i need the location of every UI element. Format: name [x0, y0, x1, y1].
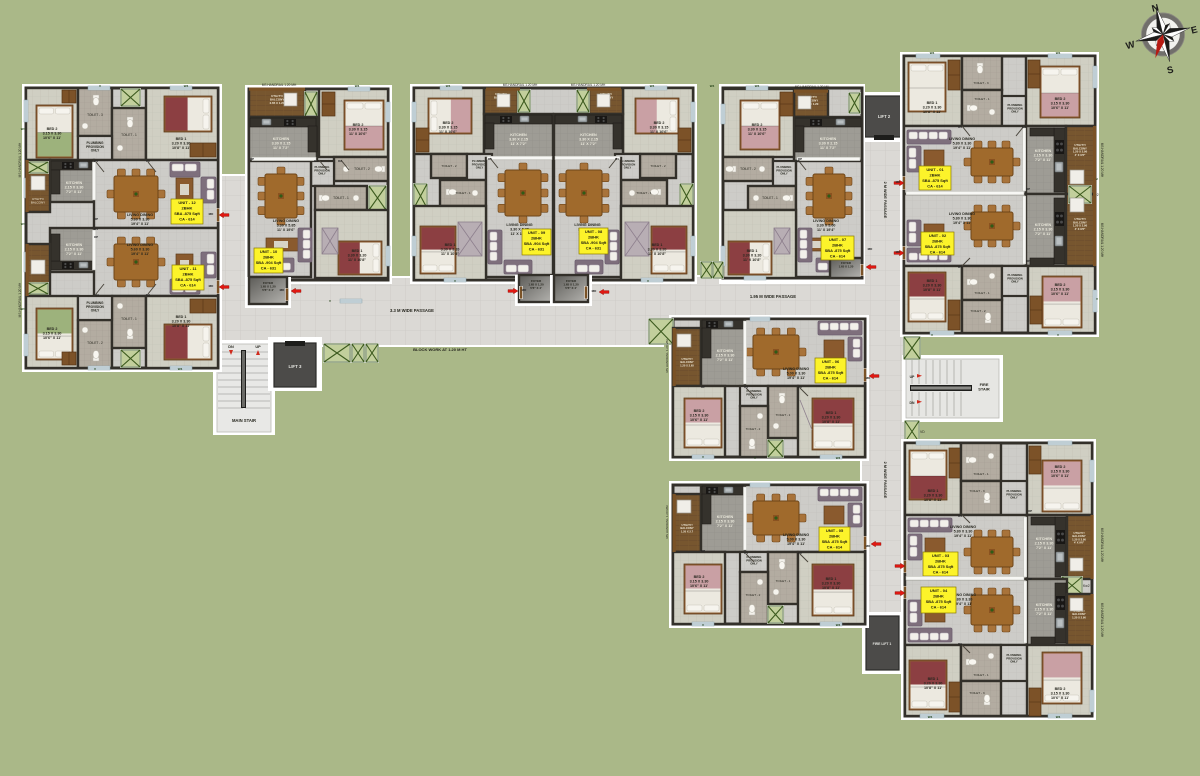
svg-text:2BHK: 2BHK: [935, 559, 946, 564]
svg-text:KITCHEN: KITCHEN: [717, 515, 734, 519]
svg-text:LIVING DINING: LIVING DINING: [949, 212, 975, 216]
svg-text:19'4" X 11': 19'4" X 11': [787, 376, 805, 380]
svg-text:Kw2: Kw2: [1083, 584, 1090, 588]
svg-text:OP: OP: [701, 385, 705, 389]
svg-text:5.80 X 3.30: 5.80 X 3.30: [954, 529, 973, 533]
svg-text:V: V: [94, 367, 96, 371]
svg-text:SBA -875 Sqft: SBA -875 Sqft: [818, 370, 844, 375]
svg-text:D1: D1: [958, 265, 962, 269]
svg-text:3.15 X 3.30: 3.15 X 3.30: [690, 413, 709, 417]
svg-text:MS HANDRAIL 1.20 MH: MS HANDRAIL 1.20 MH: [18, 282, 22, 317]
svg-text:V: V: [754, 456, 756, 460]
svg-text:2.65 X 1.20: 2.65 X 1.20: [270, 101, 285, 105]
svg-text:BED 1: BED 1: [927, 279, 938, 283]
svg-text:UNIT - 03: UNIT - 03: [932, 553, 950, 558]
svg-text:UNIT - 08: UNIT - 08: [585, 229, 603, 234]
svg-text:ONLY: ONLY: [624, 166, 632, 170]
svg-text:19'4" X 11': 19'4" X 11': [954, 602, 972, 606]
svg-text:10'6" X 11': 10'6" X 11': [1051, 474, 1069, 478]
svg-text:3.15 X 3.30: 3.15 X 3.30: [1051, 691, 1070, 695]
svg-text:BED 2: BED 2: [353, 123, 364, 127]
svg-text:CA - 614: CA - 614: [827, 545, 843, 550]
svg-text:3.30 X 3.15: 3.30 X 3.15: [748, 127, 767, 131]
svg-text:BED 1: BED 1: [826, 577, 837, 581]
svg-text:TOILET - 1: TOILET - 1: [333, 196, 349, 200]
svg-text:LIVING DINING: LIVING DINING: [574, 223, 600, 227]
svg-text:KITCHEN: KITCHEN: [1036, 603, 1053, 607]
svg-text:7'2" X 11': 7'2" X 11': [66, 252, 82, 256]
svg-text:4' X 9'6": 4' X 9'6": [1075, 227, 1086, 231]
svg-text:V: V: [329, 299, 331, 303]
svg-text:ONLY: ONLY: [91, 309, 100, 313]
svg-text:11' X 10'8": 11' X 10'8": [348, 258, 366, 262]
svg-text:TOILET - 1: TOILET - 1: [121, 317, 137, 321]
svg-text:D2: D2: [798, 385, 802, 389]
svg-text:CA - 614: CA - 614: [933, 570, 949, 575]
svg-text:11' X 10'6": 11' X 10'6": [748, 132, 766, 136]
svg-text:D1: D1: [744, 385, 748, 389]
svg-text:3.20 X 3.30: 3.20 X 3.30: [923, 283, 942, 287]
svg-text:UP: UP: [255, 345, 261, 349]
svg-text:BLOCK WORK AT 1.20 M HT: BLOCK WORK AT 1.20 M HT: [413, 347, 467, 352]
svg-text:W4: W4: [928, 715, 933, 719]
svg-text:V: V: [931, 333, 933, 337]
svg-text:3.30 X 3.15: 3.30 X 3.15: [439, 125, 458, 129]
svg-text:3.15 X 3.30: 3.15 X 3.30: [1051, 287, 1070, 291]
svg-text:TOILET - 3: TOILET - 3: [969, 691, 984, 695]
svg-text:5.80 X 3.30: 5.80 X 3.30: [953, 216, 972, 220]
svg-text:3.15 X 3.30: 3.15 X 3.30: [690, 579, 709, 583]
svg-text:10'8" X 11': 10'8" X 11': [924, 498, 942, 502]
svg-text:2BHK: 2BHK: [825, 365, 836, 370]
svg-text:BALCONY: BALCONY: [31, 201, 45, 205]
svg-text:MD: MD: [209, 284, 214, 288]
svg-text:3.30 X 5.85: 3.30 X 5.85: [277, 223, 296, 227]
svg-text:BED 2: BED 2: [443, 121, 454, 125]
svg-text:D1: D1: [314, 159, 318, 163]
svg-text:BED 2: BED 2: [694, 575, 705, 579]
svg-text:W4: W4: [930, 51, 935, 55]
svg-text:11' X 7'2": 11' X 7'2": [580, 142, 596, 146]
svg-text:5.60 X 3.30: 5.60 X 3.30: [131, 217, 150, 221]
svg-text:MD: MD: [896, 180, 901, 184]
svg-text:D1: D1: [94, 159, 98, 163]
svg-text:ONLY: ONLY: [780, 172, 788, 176]
svg-text:3.30 X 3.20: 3.30 X 3.20: [348, 253, 367, 257]
svg-text:3.30 X 3.20: 3.30 X 3.20: [743, 253, 762, 257]
svg-text:D1: D1: [615, 157, 619, 161]
svg-text:SBA -904 Sqft: SBA -904 Sqft: [524, 241, 550, 246]
svg-text:10'8" X 11': 10'8" X 11': [172, 146, 190, 150]
svg-text:STAIR: STAIR: [978, 387, 990, 392]
svg-text:7'2" X 11': 7'2" X 11': [1036, 612, 1052, 616]
svg-text:D2: D2: [798, 551, 802, 555]
svg-text:CA - 614: CA - 614: [823, 376, 839, 381]
svg-text:BED 1: BED 1: [928, 489, 939, 493]
svg-text:TOILET - 1: TOILET - 1: [974, 291, 989, 295]
svg-text:MS HANDRAIL 1.20 MH: MS HANDRAIL 1.20 MH: [1100, 528, 1104, 563]
svg-text:TOILET - 1: TOILET - 1: [762, 196, 778, 200]
svg-text:D1: D1: [95, 293, 99, 297]
svg-text:SBA -875 Sqft: SBA -875 Sqft: [822, 539, 848, 544]
svg-text:BED 1: BED 1: [747, 249, 758, 253]
svg-text:V: V: [1096, 297, 1098, 301]
svg-text:2BHK: 2BHK: [832, 243, 843, 248]
svg-text:7'2" X 11': 7'2" X 11': [717, 358, 733, 362]
svg-text:LIVING DINING: LIVING DINING: [783, 533, 809, 537]
svg-text:19'4" X 11': 19'4" X 11': [787, 542, 805, 546]
svg-text:MS HANDRAIL 1.20 MM: MS HANDRAIL 1.20 MM: [665, 339, 669, 372]
svg-text:UNIT - 10: UNIT - 10: [260, 249, 278, 254]
svg-text:MD: MD: [280, 288, 285, 292]
svg-text:1.20 X 2.7: 1.20 X 2.7: [681, 529, 694, 533]
svg-text:19'4" X 11': 19'4" X 11': [131, 222, 149, 226]
svg-text:W4: W4: [446, 84, 451, 88]
svg-text:10'8" X 11': 10'8" X 11': [172, 324, 190, 328]
svg-text:SBA -875 Sqft: SBA -875 Sqft: [825, 248, 851, 253]
svg-text:D1: D1: [958, 514, 962, 518]
svg-text:CA - 631: CA - 631: [261, 266, 277, 271]
svg-text:TOILET - 2: TOILET - 2: [746, 593, 761, 597]
svg-text:V: V: [1057, 333, 1059, 337]
svg-text:D2: D2: [338, 159, 342, 163]
svg-text:2BHK: 2BHK: [588, 235, 599, 240]
svg-text:3.30 X 3.15: 3.30 X 3.15: [650, 125, 669, 129]
svg-text:10'6" X 11': 10'6" X 11': [43, 336, 61, 340]
svg-text:2BHK: 2BHK: [263, 255, 274, 260]
svg-text:3.30 X 3.20: 3.30 X 3.20: [648, 247, 667, 251]
svg-text:2.15 X 3.30: 2.15 X 3.30: [1035, 541, 1054, 545]
svg-text:7'2" X 11': 7'2" X 11': [1035, 158, 1051, 162]
svg-text:KITCHEN: KITCHEN: [820, 137, 837, 141]
svg-text:TOILET - 3: TOILET - 3: [87, 113, 103, 117]
svg-text:11' X 19'6": 11' X 19'6": [277, 228, 295, 232]
svg-text:OP: OP: [798, 157, 802, 161]
svg-text:19'4" X 11': 19'4" X 11': [953, 221, 971, 225]
svg-text:2BHK: 2BHK: [182, 206, 193, 211]
svg-text:KITCHEN: KITCHEN: [273, 137, 290, 141]
svg-text:LIVING DINING: LIVING DINING: [813, 219, 839, 223]
svg-text:2.15 X 3.30: 2.15 X 3.30: [716, 519, 735, 523]
svg-text:10'8" X 11': 10'8" X 11': [822, 586, 840, 590]
svg-text:BED 2: BED 2: [1055, 97, 1066, 101]
svg-text:3.20 X 3.30: 3.20 X 3.30: [924, 493, 943, 497]
svg-text:TOILET - 2: TOILET - 2: [970, 309, 985, 313]
svg-text:3.20 X 3.30: 3.20 X 3.30: [822, 415, 841, 419]
svg-text:2.15 X 3.30: 2.15 X 3.30: [1035, 607, 1054, 611]
svg-text:CA - 614: CA - 614: [931, 605, 947, 610]
svg-text:10'8" X 11': 10'8" X 11': [923, 110, 941, 114]
svg-text:11' X 19'4": 11' X 19'4": [817, 228, 835, 232]
svg-text:ONLY: ONLY: [1011, 110, 1019, 114]
svg-text:7'2" X 11': 7'2" X 11': [66, 190, 82, 194]
svg-text:BED 1: BED 1: [927, 101, 938, 105]
svg-text:MD: MD: [522, 288, 527, 292]
svg-text:5.00 X 3.30: 5.00 X 3.30: [787, 537, 806, 541]
svg-text:BED 1: BED 1: [176, 315, 187, 319]
svg-text:KITCHEN: KITCHEN: [1035, 149, 1052, 153]
svg-text:W4: W4: [178, 367, 183, 371]
svg-text:5'6" X 4': 5'6" X 4': [262, 288, 274, 292]
svg-text:MS HANDRAIL 1.20 MH: MS HANDRAIL 1.20 MH: [1100, 223, 1104, 258]
svg-text:1.20 X 2.65: 1.20 X 2.65: [680, 363, 694, 367]
svg-text:CA - 631: CA - 631: [529, 247, 545, 252]
svg-text:W4: W4: [1056, 715, 1061, 719]
svg-text:10'8" X 11': 10'8" X 11': [924, 686, 942, 690]
svg-text:W4: W4: [21, 307, 26, 311]
svg-text:D1: D1: [744, 551, 748, 555]
svg-text:1.65 X 1.20: 1.65 X 1.20: [839, 264, 854, 268]
svg-text:2BHK: 2BHK: [183, 272, 194, 277]
svg-text:SBA -904 Sqft: SBA -904 Sqft: [256, 260, 282, 265]
svg-text:MS HANDRAIL 1.20 MH: MS HANDRAIL 1.20 MH: [18, 142, 22, 177]
svg-text:OP: OP: [1028, 509, 1032, 513]
svg-text:KITCHEN: KITCHEN: [1035, 223, 1052, 227]
svg-text:SBA -875 Sqft: SBA -875 Sqft: [926, 599, 952, 604]
svg-text:2.15 X 3.30: 2.15 X 3.30: [1034, 227, 1053, 231]
svg-text:TOILET - 1: TOILET - 1: [973, 472, 988, 476]
svg-text:OP: OP: [1026, 187, 1030, 191]
svg-text:UNIT - 05: UNIT - 05: [826, 528, 844, 533]
svg-text:CA - 614: CA - 614: [930, 250, 946, 255]
svg-text:DN: DN: [228, 345, 234, 349]
svg-text:MD: MD: [896, 250, 901, 254]
svg-text:W4: W4: [1056, 51, 1061, 55]
svg-text:LIFT 3: LIFT 3: [289, 364, 302, 369]
svg-text:5.80 X 3.30: 5.80 X 3.30: [953, 141, 972, 145]
svg-text:OP: OP: [250, 157, 254, 161]
svg-text:2BHK: 2BHK: [829, 534, 840, 539]
svg-text:3.15 X 3.30: 3.15 X 3.30: [43, 331, 62, 335]
svg-text:V: V: [454, 279, 456, 283]
svg-text:MD: MD: [209, 212, 214, 216]
svg-text:KITCHEN: KITCHEN: [580, 133, 597, 137]
svg-text:LIVING DINING: LIVING DINING: [950, 525, 976, 529]
svg-text:5.80 X 3.30: 5.80 X 3.30: [954, 597, 973, 601]
svg-text:2.15 X 3.30: 2.15 X 3.30: [65, 185, 84, 189]
svg-text:1.20 X 2.90: 1.20 X 2.90: [1072, 615, 1086, 619]
svg-text:V: V: [702, 455, 704, 459]
svg-text:W4: W4: [836, 456, 841, 460]
svg-text:2.15 X 3.30: 2.15 X 3.30: [716, 353, 735, 357]
svg-text:VD: VD: [920, 430, 925, 434]
svg-text:TOILET - 1: TOILET - 1: [121, 133, 137, 137]
svg-text:11' X 10'6": 11' X 10'6": [650, 130, 668, 134]
svg-text:7'2" X 11': 7'2" X 11': [1035, 232, 1051, 236]
svg-text:KITCHEN: KITCHEN: [66, 243, 83, 247]
svg-text:3.15 X 3.30: 3.15 X 3.30: [1051, 469, 1070, 473]
svg-text:LIVING DINING: LIVING DINING: [506, 223, 532, 227]
svg-text:10'6" X 11': 10'6" X 11': [43, 136, 61, 140]
svg-text:10'6" X 11': 10'6" X 11': [1051, 106, 1069, 110]
svg-text:19'4" X 11': 19'4" X 11': [131, 252, 149, 256]
svg-text:11' X 10'6": 11' X 10'6": [349, 132, 367, 136]
svg-text:W4: W4: [21, 222, 26, 226]
svg-text:MD: MD: [866, 544, 871, 548]
svg-text:UNIT - 07: UNIT - 07: [829, 237, 847, 242]
svg-text:3.30 X 2.15: 3.30 X 2.15: [579, 137, 598, 141]
svg-text:2BHK: 2BHK: [930, 173, 941, 178]
svg-text:3.30 X 3.15: 3.30 X 3.15: [349, 127, 368, 131]
svg-text:UNIT - 04: UNIT - 04: [930, 588, 948, 593]
svg-text:3.30 X 2.15: 3.30 X 2.15: [272, 141, 291, 145]
svg-text:10'6" X 11': 10'6" X 11': [690, 418, 708, 422]
svg-text:LIVING DINING: LIVING DINING: [783, 367, 809, 371]
svg-text:10'6" X 11': 10'6" X 11': [690, 584, 708, 588]
svg-text:2BHK: 2BHK: [531, 236, 542, 241]
svg-text:1.95 M WIDE PASSAGE: 1.95 M WIDE PASSAGE: [750, 294, 796, 299]
svg-text:V: V: [702, 623, 704, 627]
svg-text:TOILET - 1: TOILET - 1: [776, 579, 791, 583]
svg-text:CA - 614: CA - 614: [179, 217, 195, 222]
svg-text:4' X 9'6": 4' X 9'6": [1074, 541, 1085, 545]
svg-text:D1: D1: [488, 157, 492, 161]
svg-text:LIVING DINING: LIVING DINING: [127, 213, 153, 217]
svg-text:11' X 10'8": 11' X 10'8": [441, 252, 459, 256]
svg-text:10'8" X 11': 10'8" X 11': [923, 288, 941, 292]
svg-text:TOILET - 1: TOILET - 1: [974, 97, 989, 101]
svg-text:CA - 614: CA - 614: [927, 184, 943, 189]
svg-text:11' X 7'2": 11' X 7'2": [510, 142, 526, 146]
svg-text:OP: OP: [1028, 577, 1032, 581]
svg-text:CA - 614: CA - 614: [180, 283, 196, 288]
svg-text:3.30 X 2.15: 3.30 X 2.15: [819, 141, 838, 145]
svg-text:D2: D2: [146, 293, 150, 297]
svg-text:LIVING DINING: LIVING DINING: [273, 219, 299, 223]
svg-text:TOILET - 2: TOILET - 2: [740, 167, 756, 171]
svg-text:D2: D2: [146, 159, 150, 163]
svg-text:3.30 X 2.15: 3.30 X 2.15: [509, 137, 528, 141]
svg-text:TOILET - 1: TOILET - 1: [455, 191, 470, 195]
svg-text:MS HANDRAIL 1.20 MH: MS HANDRAIL 1.20 MH: [503, 83, 538, 87]
svg-text:MS HANDRAIL 1.20 MH: MS HANDRAIL 1.20 MH: [1100, 603, 1104, 638]
svg-text:BED 1: BED 1: [352, 249, 363, 253]
svg-text:CA - 631: CA - 631: [586, 246, 602, 251]
svg-text:MS HANDRAIL 1.20 MH: MS HANDRAIL 1.20 MH: [1100, 143, 1104, 178]
svg-text:KITCHEN: KITCHEN: [1036, 537, 1053, 541]
svg-text:3.20 X 3.30: 3.20 X 3.30: [172, 141, 191, 145]
svg-text:MD: MD: [868, 247, 873, 251]
svg-text:LIVING DINING: LIVING DINING: [127, 243, 153, 247]
svg-text:UNIT - 11: UNIT - 11: [179, 266, 197, 271]
svg-text:10'8" X 11': 10'8" X 11': [822, 420, 840, 424]
svg-text:BED 2: BED 2: [694, 409, 705, 413]
svg-text:ONLY: ONLY: [750, 562, 758, 566]
svg-text:ONLY: ONLY: [318, 172, 326, 176]
svg-text:ONLY: ONLY: [1011, 280, 1019, 284]
svg-text:3.30 X 3.20: 3.30 X 3.20: [441, 247, 460, 251]
svg-text:UNIT - 01: UNIT - 01: [926, 167, 944, 172]
svg-text:SBA -875 Sqft: SBA -875 Sqft: [175, 277, 201, 282]
svg-text:V: V: [647, 279, 649, 283]
svg-text:7'2" X 11': 7'2" X 11': [717, 524, 733, 528]
svg-text:TOILET - 2: TOILET - 2: [87, 341, 103, 345]
svg-text:SBA -875 Sqft: SBA -875 Sqft: [925, 244, 951, 249]
svg-text:TOILET - 1: TOILET - 1: [973, 673, 988, 677]
svg-text:5.00 X 3.30: 5.00 X 3.30: [787, 371, 806, 375]
svg-text:OP: OP: [94, 217, 98, 221]
svg-text:W4: W4: [355, 84, 360, 88]
svg-text:MS HANDRAIL 1.20 MH: MS HANDRAIL 1.20 MH: [571, 83, 606, 87]
svg-text:UNIT - 06: UNIT - 06: [822, 359, 840, 364]
svg-text:D2: D2: [1022, 125, 1026, 129]
svg-text:3.20 X 3.30: 3.20 X 3.30: [923, 105, 942, 109]
svg-text:11' X 7'2": 11' X 7'2": [820, 146, 836, 150]
svg-text:19'4" X 11': 19'4" X 11': [953, 146, 971, 150]
svg-text:ONLY: ONLY: [1010, 496, 1018, 500]
svg-text:BED 2: BED 2: [1055, 465, 1066, 469]
svg-text:MS HANDRAIL 1.20 MH: MS HANDRAIL 1.20 MH: [795, 85, 830, 89]
svg-text:3.15 X 3.30: 3.15 X 3.30: [1051, 101, 1070, 105]
svg-text:D1: D1: [94, 227, 98, 231]
svg-text:7'2" X 11': 7'2" X 11': [1036, 546, 1052, 550]
svg-text:BED 1: BED 1: [445, 243, 456, 247]
svg-text:UNIT - 02: UNIT - 02: [929, 233, 947, 238]
svg-text:5.60 X 3.30: 5.60 X 3.30: [131, 247, 150, 251]
svg-text:MD: MD: [592, 289, 597, 293]
svg-text:TOILET - 1: TOILET - 1: [636, 191, 651, 195]
svg-text:KITCHEN: KITCHEN: [66, 181, 83, 185]
svg-text:3.20 X 3.30: 3.20 X 3.30: [924, 681, 943, 685]
svg-text:SBA -875 Sqft: SBA -875 Sqft: [922, 178, 948, 183]
svg-text:3.20 X 3.30: 3.20 X 3.30: [822, 581, 841, 585]
svg-text:D1: D1: [958, 642, 962, 646]
svg-text:4' X 9'6": 4' X 9'6": [1075, 153, 1086, 157]
svg-text:2.15 X 3.30: 2.15 X 3.30: [1034, 153, 1053, 157]
svg-text:W4: W4: [650, 84, 655, 88]
svg-text:TOILET - 3: TOILET - 3: [973, 81, 988, 85]
svg-text:ONLY: ONLY: [750, 396, 758, 400]
svg-text:BED 1: BED 1: [826, 411, 837, 415]
svg-text:2 M WIDE PASSAGE: 2 M WIDE PASSAGE: [883, 182, 887, 219]
svg-text:TOILET - 1: TOILET - 1: [776, 413, 791, 417]
svg-text:BED 2: BED 2: [1055, 283, 1066, 287]
svg-text:11' X 7'2": 11' X 7'2": [273, 146, 289, 150]
svg-text:V: V: [99, 84, 101, 88]
svg-text:TOILET - 2: TOILET - 2: [354, 167, 370, 171]
svg-text:W4: W4: [710, 84, 715, 88]
svg-text:MD: MD: [866, 376, 871, 380]
svg-text:3.15 X 3.30: 3.15 X 3.30: [43, 131, 62, 135]
svg-text:BED 1: BED 1: [928, 677, 939, 681]
svg-text:W4: W4: [836, 623, 841, 627]
svg-text:ONLY: ONLY: [1010, 660, 1018, 664]
svg-text:11' X 10'6": 11' X 10'6": [439, 130, 457, 134]
svg-text:V: V: [1096, 177, 1098, 181]
svg-text:MAIN STAIR: MAIN STAIR: [232, 418, 256, 423]
svg-text:2BHK: 2BHK: [932, 239, 943, 244]
svg-text:DN: DN: [910, 401, 915, 405]
svg-text:TOILET - 2: TOILET - 2: [650, 164, 665, 168]
svg-text:OP: OP: [701, 549, 705, 553]
svg-text:5'6" X 4': 5'6" X 4': [565, 286, 577, 290]
svg-text:TOILET - 3: TOILET - 3: [969, 489, 984, 493]
svg-text:SBA -875 Sqft: SBA -875 Sqft: [174, 211, 200, 216]
svg-text:BED 2: BED 2: [752, 123, 763, 127]
svg-text:W4: W4: [184, 84, 189, 88]
svg-text:ONLY: ONLY: [476, 166, 484, 170]
svg-text:LIVING DINING: LIVING DINING: [949, 137, 975, 141]
svg-text:ONLY: ONLY: [91, 149, 100, 153]
svg-text:19'4" X 11': 19'4" X 11': [954, 534, 972, 538]
svg-text:OP: OP: [94, 235, 98, 239]
svg-text:10'6" X 11': 10'6" X 11': [1051, 292, 1069, 296]
svg-text:11' X 10'8": 11' X 10'8": [743, 258, 761, 262]
svg-text:2BHK: 2BHK: [933, 594, 944, 599]
svg-text:UNIT - 12: UNIT - 12: [178, 200, 196, 205]
svg-text:FIRE LIFT 1: FIRE LIFT 1: [873, 642, 892, 646]
svg-text:MS HANDRAIL 1.20 MM: MS HANDRAIL 1.20 MM: [665, 505, 669, 538]
